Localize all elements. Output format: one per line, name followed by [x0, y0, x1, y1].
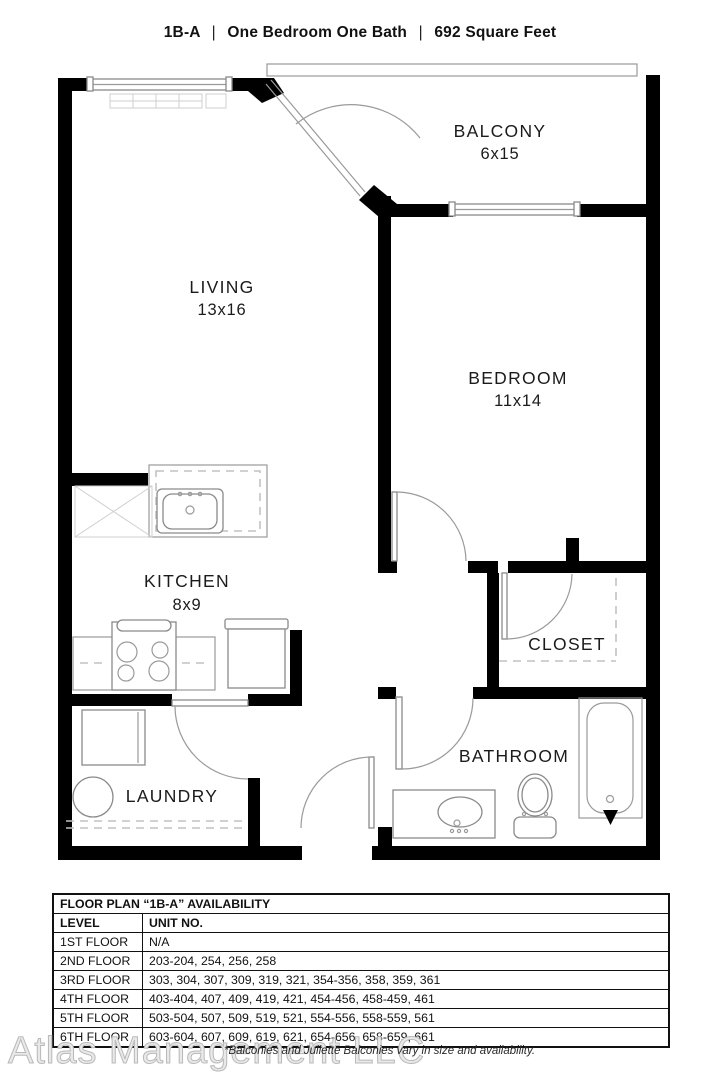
wall-left-outer	[58, 78, 72, 860]
label-closet: CLOSET	[528, 634, 606, 654]
fridge	[225, 619, 288, 688]
units-cell: 503-504, 507, 509, 519, 521, 554-556, 55…	[143, 1009, 670, 1028]
level-cell: 5TH FLOOR	[53, 1009, 143, 1028]
balcony-rail	[267, 64, 637, 76]
level-cell: 4TH FLOOR	[53, 990, 143, 1009]
toilet	[514, 774, 556, 838]
availability-row: 3RD FLOOR 303, 304, 307, 309, 319, 321, …	[53, 971, 669, 990]
heater-unit	[110, 94, 226, 108]
label-balcony: BALCONY	[454, 121, 547, 141]
wall-layer	[58, 75, 660, 860]
label-laundry: LAUNDRY	[126, 786, 218, 806]
laundry-basin	[73, 777, 113, 817]
level-cell: 3RD FLOOR	[53, 971, 143, 990]
label-living: LIVING	[189, 277, 254, 297]
floor-plan-drawing: BALCONY 6x15 LIVING 13x16 BEDROOM 11x14 …	[0, 0, 720, 880]
wall-bedroom-bottom-b	[468, 561, 498, 573]
availability-row: 2ND FLOOR 203-204, 254, 256, 258	[53, 952, 669, 971]
availability-table: FLOOR PLAN “1B-A” AVAILABILITY LEVEL UNI…	[52, 893, 670, 1048]
wall-right-outer	[646, 75, 660, 860]
bathroom-vanity	[393, 790, 495, 838]
wall-bath-top-b	[473, 687, 646, 699]
label-kitchen: KITCHEN	[144, 571, 230, 591]
units-cell: 303, 304, 307, 309, 319, 321, 354-356, 3…	[143, 971, 670, 990]
units-cell: 203-204, 254, 256, 258	[143, 952, 670, 971]
wall-bedroom-bottom-a	[378, 561, 397, 573]
wall-bath-top-a	[378, 687, 396, 699]
stove	[112, 620, 176, 690]
availability-header-row: LEVEL UNIT NO.	[53, 914, 669, 933]
wall-kitchen-divider	[58, 473, 148, 486]
wall-kitchen-bottom-b	[248, 694, 302, 706]
availability-row: 5TH FLOOR 503-504, 507, 509, 519, 521, 5…	[53, 1009, 669, 1028]
wall-stub-bedroom	[566, 538, 579, 563]
bathtub	[579, 698, 642, 825]
laundry-door	[172, 700, 248, 779]
washer	[82, 710, 145, 765]
entry-door	[301, 757, 374, 828]
level-cell: 2ND FLOOR	[53, 952, 143, 971]
window-living	[87, 77, 232, 91]
kitchen-sink	[157, 489, 223, 533]
column-header-level: LEVEL	[53, 914, 143, 933]
availability-title-row: FLOOR PLAN “1B-A” AVAILABILITY	[53, 894, 669, 914]
availability-row: 4TH FLOOR 403-404, 407, 409, 419, 421, 4…	[53, 990, 669, 1009]
floor-plan-page: 1B-A | One Bedroom One Bath | 692 Square…	[0, 0, 720, 1080]
availability-row: 1ST FLOOR N/A	[53, 933, 669, 952]
availability-title: FLOOR PLAN “1B-A” AVAILABILITY	[53, 894, 669, 914]
wall-living-bedroom	[378, 196, 391, 573]
dims-kitchen: 8x9	[172, 596, 201, 614]
column-header-unit-no: UNIT NO.	[143, 914, 670, 933]
dims-living: 13x16	[198, 301, 247, 319]
units-cell: 403-404, 407, 409, 419, 421, 454-456, 45…	[143, 990, 670, 1009]
label-bathroom: BATHROOM	[459, 746, 569, 766]
wall-bottom-left	[58, 846, 302, 860]
wall-kitchen-bottom-a	[58, 694, 172, 706]
level-cell: 1ST FLOOR	[53, 933, 143, 952]
wall-bottom-right	[372, 846, 660, 860]
wall-bedroom-top-left	[390, 204, 453, 217]
label-bedroom: BEDROOM	[468, 368, 568, 388]
wall-bedroom-top-right	[577, 204, 646, 217]
wall-closet-left	[487, 573, 499, 699]
dims-balcony: 6x15	[481, 145, 520, 163]
dims-bedroom: 11x14	[494, 392, 542, 410]
closet-door	[502, 573, 572, 639]
laundry-bifold	[66, 821, 246, 828]
window-bedroom	[449, 202, 580, 216]
balcony-door-arc	[296, 105, 420, 138]
balcony-disclaimer: *Balconies and Juliette Balconies vary i…	[224, 1045, 535, 1057]
units-cell: N/A	[143, 933, 670, 952]
balcony-door	[266, 80, 420, 196]
bedroom-door	[392, 492, 466, 561]
